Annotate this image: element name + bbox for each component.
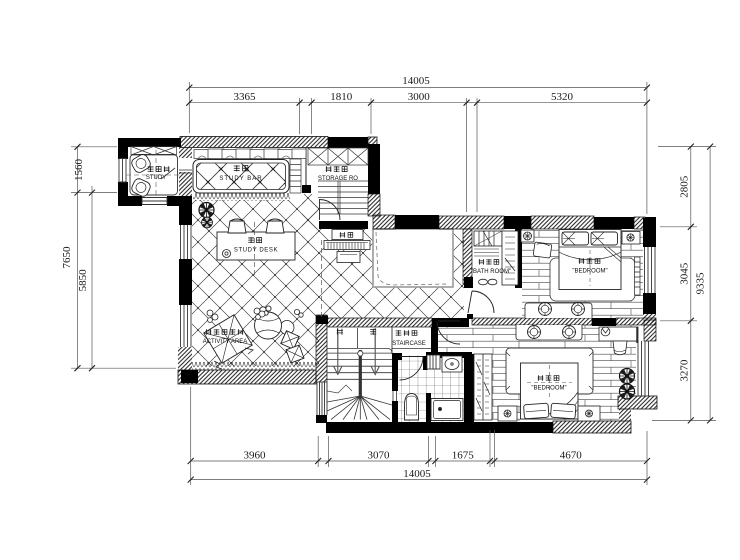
svg-text:STUDY DESK: STUDY DESK bbox=[234, 248, 278, 254]
svg-text:2805: 2805 bbox=[678, 175, 690, 198]
svg-text:"BEDROOM": "BEDROOM" bbox=[572, 269, 607, 275]
svg-text:"BATH ROOM": "BATH ROOM" bbox=[471, 269, 511, 275]
svg-text:3270: 3270 bbox=[678, 359, 690, 382]
svg-text:"BEDROOM": "BEDROOM" bbox=[531, 386, 566, 392]
svg-text:STAIRCASE: STAIRCASE bbox=[392, 341, 426, 347]
svg-text:STUDY: STUDY bbox=[146, 175, 166, 181]
svg-text:1560: 1560 bbox=[73, 159, 85, 182]
svg-text:1810: 1810 bbox=[330, 91, 353, 103]
svg-text:4670: 4670 bbox=[560, 450, 583, 462]
svg-text:STUDY BAR: STUDY BAR bbox=[219, 176, 262, 182]
svg-text:14005: 14005 bbox=[402, 75, 430, 87]
svg-text:1675: 1675 bbox=[452, 450, 475, 462]
svg-text:3045: 3045 bbox=[678, 262, 690, 285]
svg-text:3960: 3960 bbox=[244, 450, 267, 462]
svg-text:9335: 9335 bbox=[695, 272, 707, 295]
svg-text:ACTIVITY AREA: ACTIVITY AREA bbox=[203, 339, 248, 345]
svg-text:14005: 14005 bbox=[403, 468, 431, 480]
svg-text:7650: 7650 bbox=[61, 246, 73, 269]
svg-text:3000: 3000 bbox=[408, 91, 431, 103]
svg-text:3365: 3365 bbox=[234, 91, 257, 103]
svg-text:5850: 5850 bbox=[77, 269, 89, 292]
svg-text:STORAGE RO: STORAGE RO bbox=[318, 176, 358, 182]
svg-text:5320: 5320 bbox=[551, 91, 574, 103]
svg-text:3070: 3070 bbox=[368, 450, 391, 462]
